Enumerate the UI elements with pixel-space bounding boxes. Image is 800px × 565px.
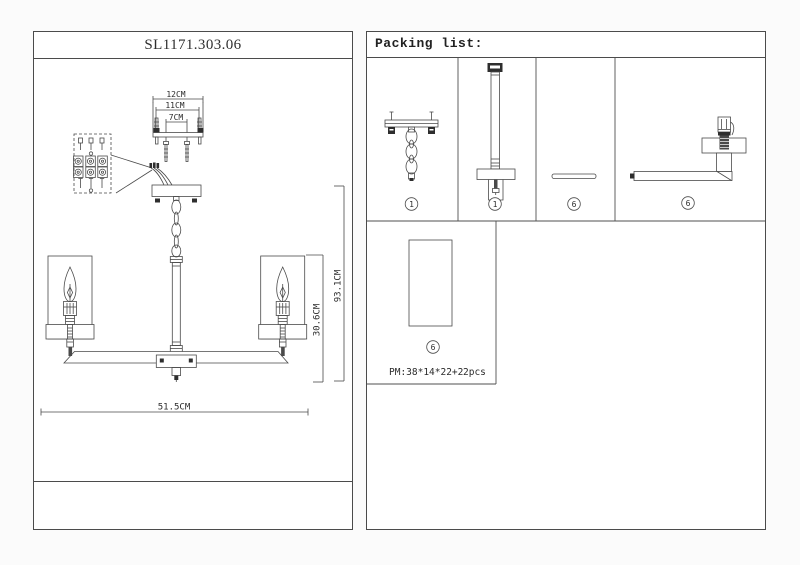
packing-title-bar: Packing list: — [367, 32, 765, 58]
dim-label-11cm: 11CM — [165, 101, 184, 110]
badge-item-3: 6 — [568, 198, 581, 211]
dim-label-12cm: 12CM — [166, 90, 185, 99]
leader-line — [116, 170, 152, 193]
leader-line — [111, 155, 152, 168]
left-candle-shade — [46, 256, 94, 356]
assembly-drawing: 12CM 11CM 7CM — [34, 58, 352, 481]
badge-item-2: 1 — [489, 198, 502, 211]
drawing-panel: SL1171.303.06 — [33, 31, 353, 530]
badge-item-4: 6 — [682, 197, 695, 210]
product-code: SL1171.303.06 — [144, 37, 241, 53]
box-spec-row: PM:38*14*22+2 2pcs — [389, 367, 486, 378]
badge-count: 1 — [493, 200, 498, 209]
right-candle-shade — [259, 256, 307, 356]
wiring-detail-box — [74, 134, 153, 193]
badge-count: 1 — [409, 200, 414, 209]
arm-assembly — [64, 352, 288, 383]
dimension-lines: 93.1CM 30.6CM 51.5CM — [41, 186, 344, 416]
mount-bracket-diagram: 12CM 11CM 7CM — [153, 90, 204, 162]
badge-count: 6 — [572, 200, 577, 209]
part-down-rod-canopy — [477, 63, 515, 200]
part-hanger-bracket-chain — [385, 112, 438, 181]
part-flat-strip — [552, 174, 596, 179]
box-qty-text: 2pcs — [463, 367, 486, 378]
packing-title: Packing list: — [375, 36, 483, 51]
badge-count: 6 — [431, 343, 436, 352]
title-block-footer — [34, 481, 352, 530]
packing-panel: Packing list: — [366, 31, 766, 530]
badge-item-5: 6 — [427, 341, 440, 354]
box-spec-text: PM:38*14*22+2 — [389, 367, 463, 378]
dim-label-overall-height: 93.1CM — [334, 269, 344, 302]
badge-count: 6 — [686, 199, 691, 208]
dim-label-body-height: 30.6CM — [313, 303, 323, 336]
part-arm-socket — [630, 117, 746, 181]
dim-label-overall-width: 51.5CM — [158, 403, 191, 413]
packing-grid — [367, 57, 765, 384]
drawing-title-bar: SL1171.303.06 — [34, 32, 352, 59]
part-glass-shade — [409, 240, 452, 326]
spec-sheet: SL1171.303.06 — [0, 0, 800, 565]
packing-list-drawing: 1 1 — [367, 57, 765, 529]
badge-item-1: 1 — [405, 198, 418, 211]
suspension-assembly — [150, 163, 202, 353]
dim-label-7cm: 7CM — [169, 113, 184, 122]
